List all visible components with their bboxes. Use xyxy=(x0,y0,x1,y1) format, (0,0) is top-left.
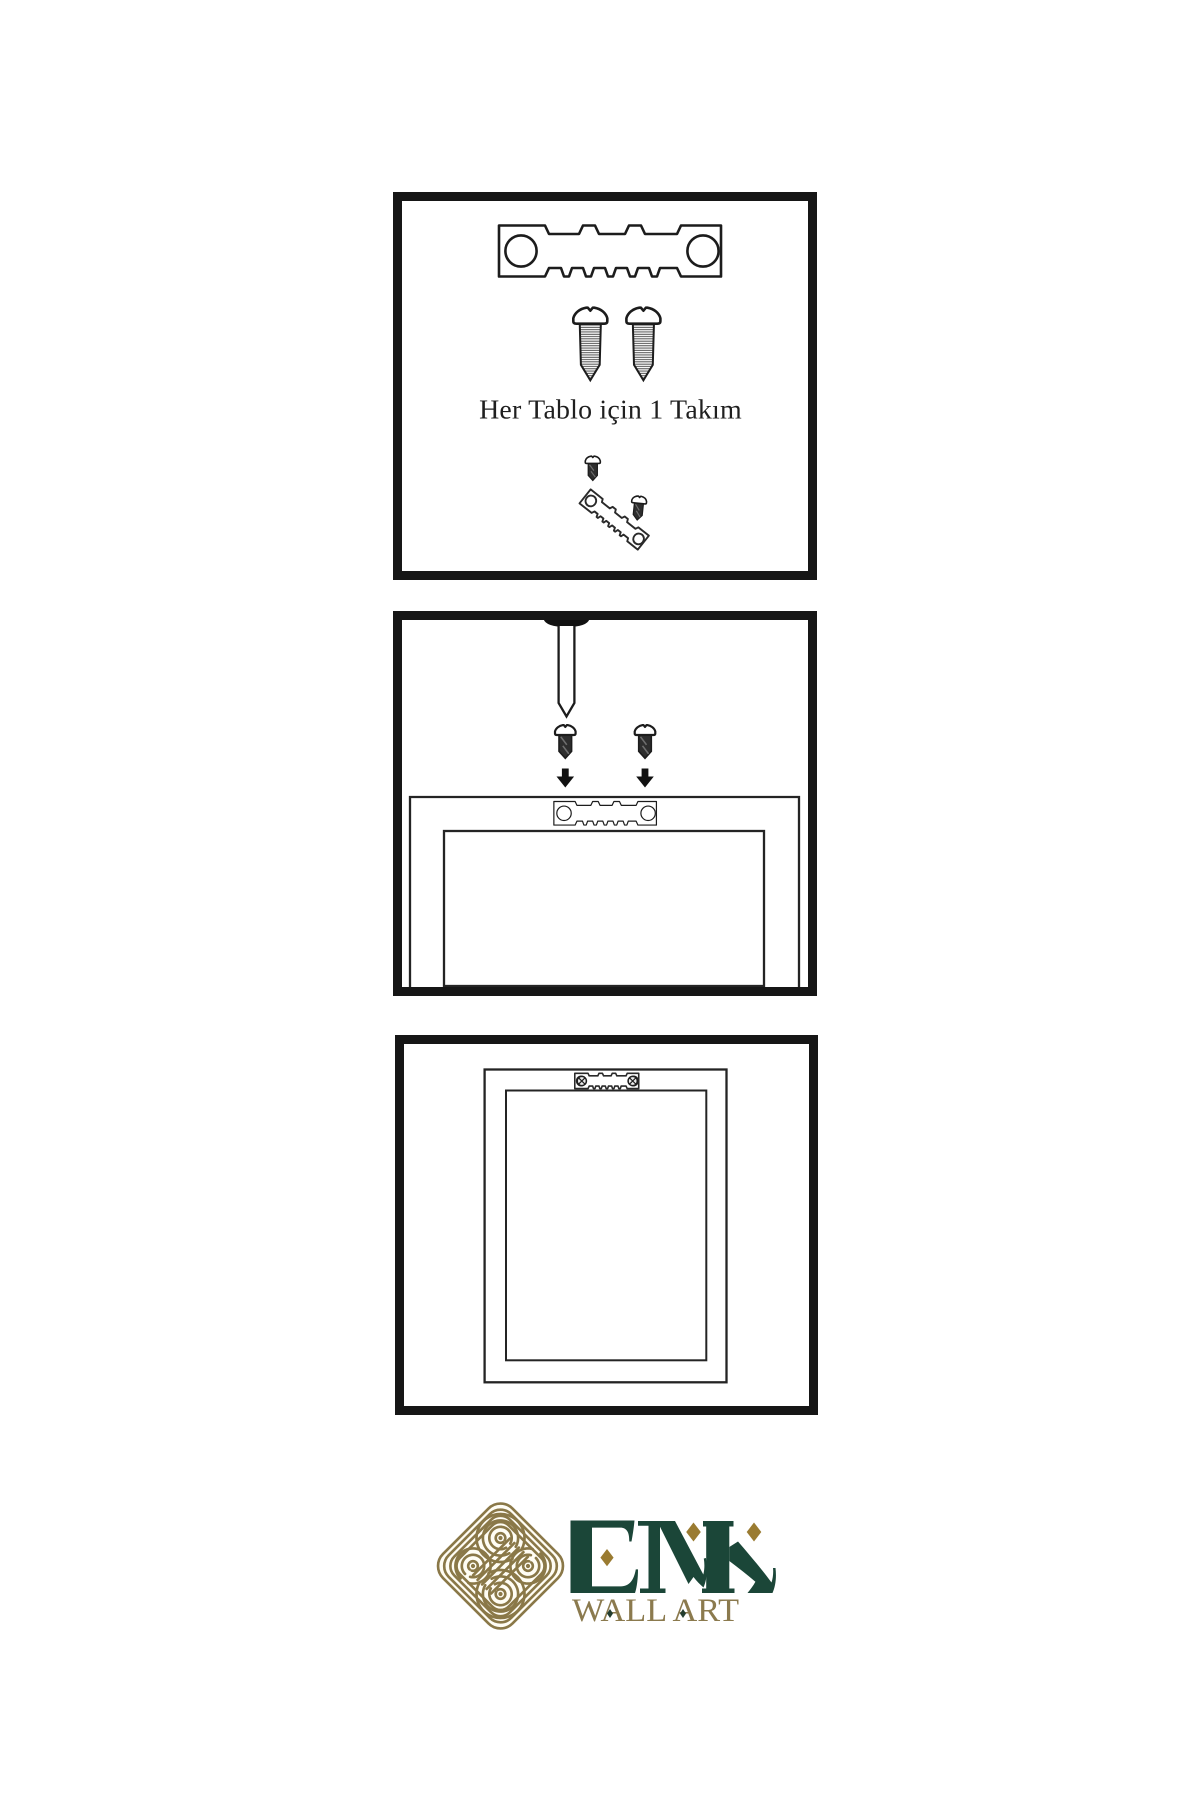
svg-text:WALL ART: WALL ART xyxy=(572,1593,739,1629)
svg-text:Her Tablo için 1 Takım: Her Tablo için 1 Takım xyxy=(479,395,742,426)
